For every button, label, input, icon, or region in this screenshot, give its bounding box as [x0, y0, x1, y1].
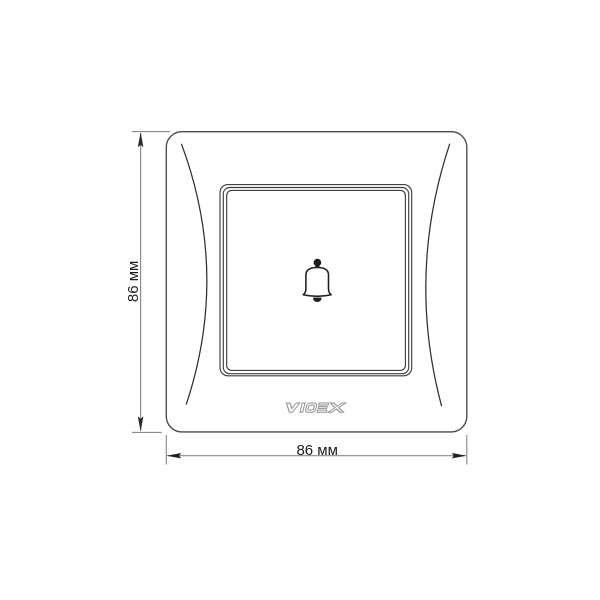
- svg-text:86 мм: 86 мм: [125, 261, 142, 302]
- svg-text:86 мм: 86 мм: [296, 442, 337, 459]
